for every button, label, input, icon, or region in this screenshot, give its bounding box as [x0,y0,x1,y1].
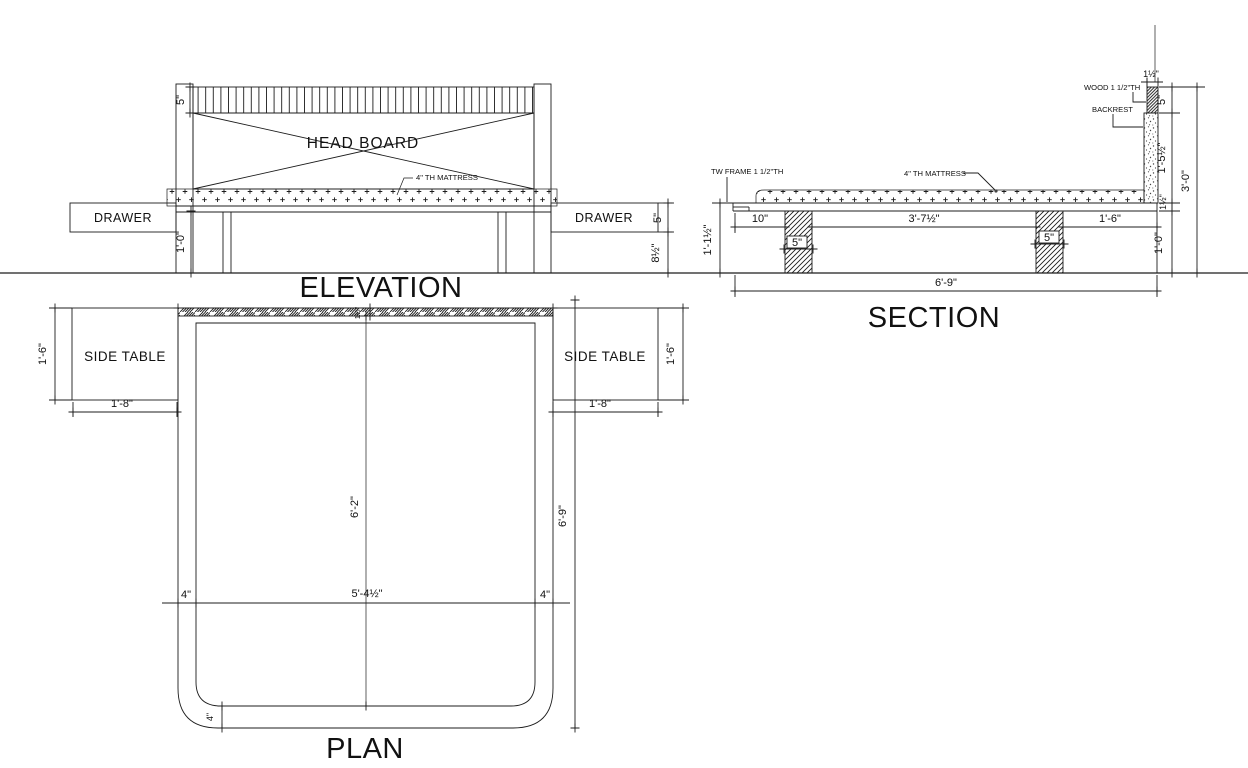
section-title: SECTION [868,302,1000,334]
plan-frame-bottom-dim: 4" [205,713,215,721]
plan-table-depth-right-dim: 1'-6" [665,343,677,365]
section-offset-dim: 10" [752,213,768,225]
section-frame-th-dim: 1½" [1158,194,1168,210]
elevation-leg-dim: 1'-0" [175,231,187,253]
backrest-section [1144,25,1158,203]
mattress-section [756,190,1144,203]
section-backrest-note: BACKREST [1092,105,1133,114]
plan-inner-length-dim: 6'-2" [349,496,361,518]
plan-title: PLAN [326,733,404,765]
plan-headboard-th-dim: 1½" [354,306,362,319]
section-total-width-dim: 6'-9" [935,277,957,289]
section-leg2-dim: 5" [1044,232,1054,244]
section-left-height-dim: 1'-1½" [702,224,714,255]
mattress-elevation [167,189,557,206]
head-board-label: HEAD BOARD [307,135,420,152]
section-frame-note: TW FRAME 1 1/2"TH [711,167,783,176]
side-table-left-label: SIDE TABLE [84,349,166,364]
plan-frame-left-dim: 4" [181,589,191,601]
plan-table-width-right-dim: 1'-8" [589,398,611,410]
bed-frame-elevation [176,206,551,212]
section-total-height-dim: 3'-0" [1180,170,1192,192]
section-view: TW FRAME 1 1/2"TH 4" TH MATTRESS WOOD 1 … [702,25,1205,334]
section-leg1-dim: 5" [792,237,802,249]
elevation-title: ELEVATION [300,272,463,304]
plan-table-depth-left-dim: 1'-6" [37,343,49,365]
bed-legs-elevation [223,212,506,273]
section-leaders [727,92,1146,202]
section-mattress-note: 4" TH MATTRESS [904,169,966,178]
section-wood-height-dim: 5" [1156,95,1168,105]
drawer-left-label: DRAWER [94,211,152,225]
plan-frame-right-dim: 4" [540,589,550,601]
headboard-plan-strip [178,308,553,316]
plan-table-width-left-dim: 1'-8" [111,398,133,410]
elevation-slat-dim: 5" [175,95,187,105]
cad-drawing-bed: 5" 1'-0" 5" 8½" HEAD BOARD 4" TH MATTRES… [0,0,1248,768]
plan-view: SIDE TABLE SIDE TABLE 1'-6" 1'-8" 1'-6" … [37,296,689,766]
headboard-slats [193,87,534,113]
section-leg-height-dim: 1'-0" [1153,232,1165,254]
side-table-right-label: SIDE TABLE [564,349,646,364]
section-rightspan-dim: 1'-6" [1099,213,1121,225]
section-backrest-height-dim: 1'-5½" [1156,142,1168,173]
section-backrest-th-dim: 1½" [1143,69,1159,79]
elevation-underdrawer-dim: 8½" [650,243,662,262]
elevation-view: 5" 1'-0" 5" 8½" HEAD BOARD 4" TH MATTRES… [70,83,674,305]
mattress-label-elevation: 4" TH MATTRESS [416,173,478,182]
plan-total-length-dim: 6'-9" [557,505,569,527]
elevation-drawer-dim: 5" [652,213,664,223]
plan-inner-width-dim: 5'-4½" [351,588,382,600]
bed-outline-plan [178,308,553,728]
section-wood-note: WOOD 1 1/2"TH [1084,83,1140,92]
section-midspan-dim: 3'-7½" [908,213,939,225]
drawer-right-label: DRAWER [575,211,633,225]
